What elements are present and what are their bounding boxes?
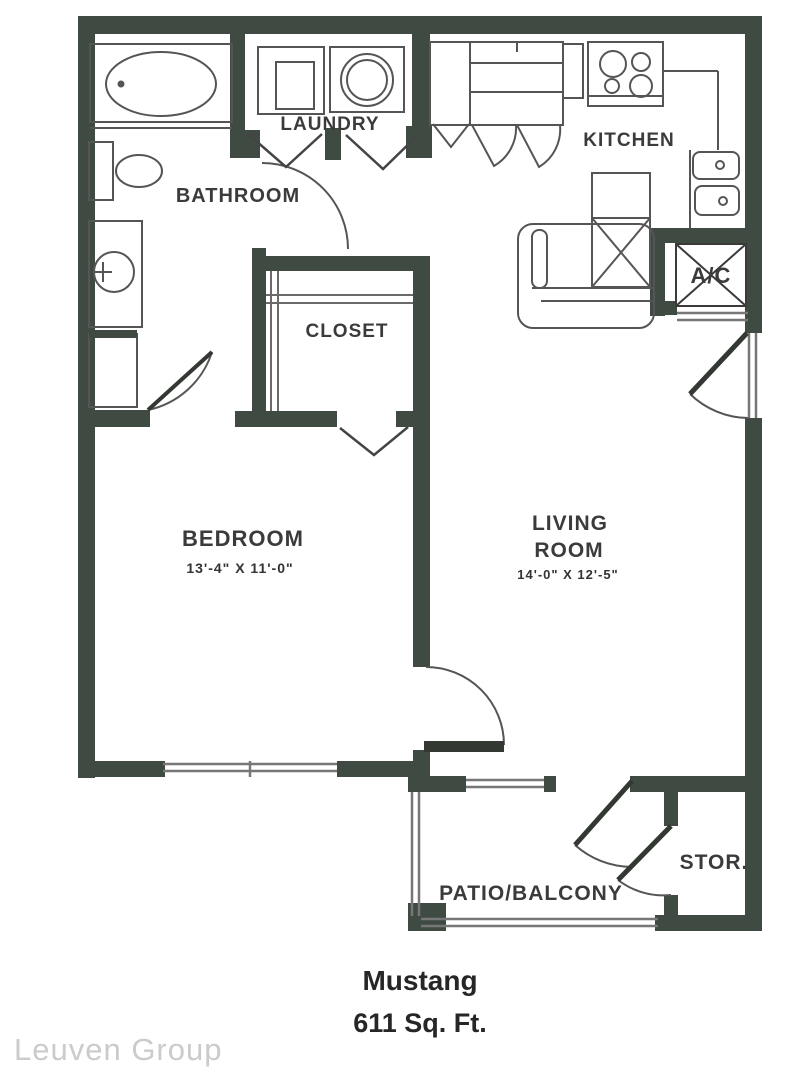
storage-door-leaf [618,826,671,880]
wall-storage-left-upper [664,792,678,826]
wall-bath-laundry-foot [230,130,260,158]
bedroom-window [163,761,337,777]
patio-rail-left [412,792,419,916]
wall-bedroom-bottom-left [78,761,165,777]
bathtub [90,44,232,128]
washer [258,47,324,114]
wall-storage-left-lower [664,895,678,931]
storage-door-arc [618,880,671,895]
kitchen-island [592,173,650,287]
bedroom-door-arc [426,667,504,745]
entry-door-jamb [749,333,756,418]
wall-storage-top [630,776,762,792]
wall-closet-left [252,248,266,427]
label-closet: CLOSET [305,321,388,342]
living-patio-window [466,780,544,787]
label-bedroom-dims: 13'-4" X 11'-0" [186,560,293,576]
label-kitchen: KITCHEN [583,130,674,151]
vanity-sink [89,221,142,327]
wall-closet-bottom [235,411,337,427]
plan-area: 611 Sq. Ft. [353,1008,487,1038]
wall-bedroom-east [413,256,430,667]
bath-cabinet [89,330,137,407]
kitchen-sink [693,152,739,215]
kitchen-cabinets [430,42,583,167]
stove [588,42,663,106]
label-living-1: LIVING [532,512,608,535]
bed-bath-door-leaf [148,352,212,410]
label-bedroom: BEDROOM [182,526,304,551]
patio-door-arc [575,845,632,867]
ac-louver [677,313,748,320]
wall-closet-bottom-jamb [396,411,416,427]
label-ac: A/C [691,263,732,288]
toilet [89,142,162,200]
patio-door-leaf [575,781,632,845]
closet-bifold [340,427,408,455]
plan-title: Mustang [362,965,477,996]
floorplan-drawing: LAUNDRY BATHROOM KITCHEN CLOSET BEDROOM … [0,0,804,1080]
wall-top [78,16,762,34]
wall-window-jamb [544,776,556,792]
wall-patio-junction [408,776,466,792]
title-block: Mustang 611 Sq. Ft. [353,965,487,1038]
label-patio: PATIO/BALCONY [439,882,623,905]
wall-bedroom-east-stub [413,750,430,777]
entry-door-leaf [690,333,747,394]
wall-closet-top [252,256,430,271]
label-bathroom: BATHROOM [176,185,300,207]
wall-left [78,16,95,778]
windows [163,313,756,926]
floorplan-page: LAUNDRY BATHROOM KITCHEN CLOSET BEDROOM … [0,0,804,1080]
label-living-2: ROOM [534,539,603,562]
label-living-dims: 14'-0" X 12'-5" [517,567,618,582]
dryer [330,47,404,112]
patio-rail-bottom [421,919,658,926]
sofa [518,224,654,328]
label-laundry: LAUNDRY [280,114,379,135]
label-storage: STOR. [680,851,749,874]
wall-ac-top [650,228,762,243]
bedroom-door-leaf [424,741,504,752]
entry-door-arc [690,394,748,418]
wall-bathroom-bottom [78,410,150,427]
wall-right-upper [745,16,762,333]
watermark: Leuven Group [14,1032,222,1067]
